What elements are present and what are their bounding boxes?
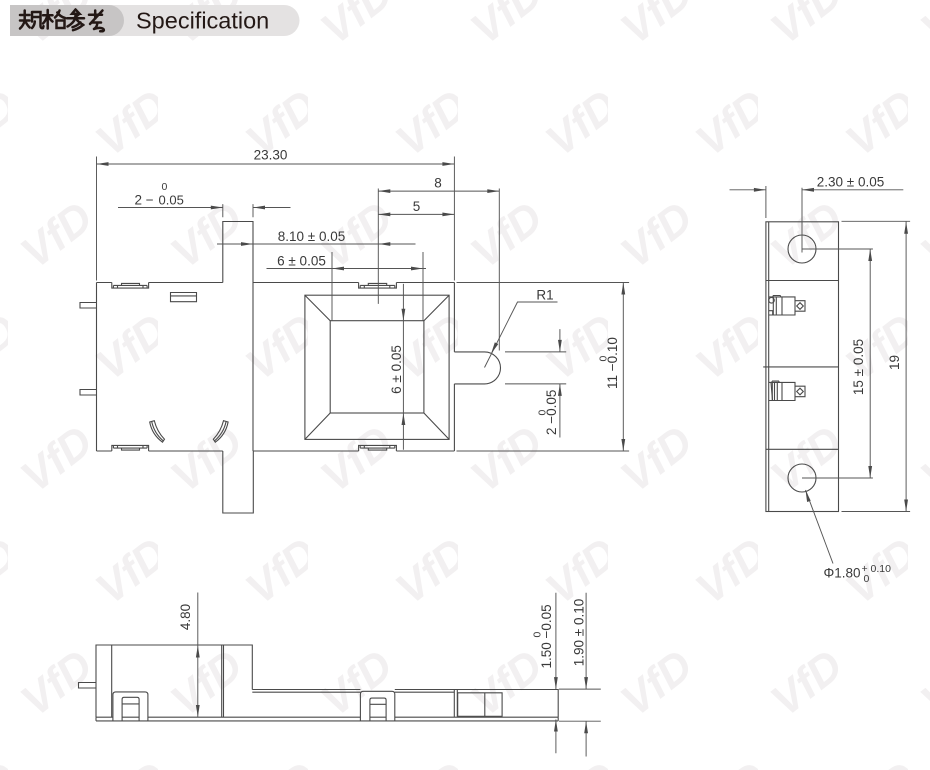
- svg-text:Specification: Specification: [136, 8, 269, 34]
- svg-text:8: 8: [434, 176, 442, 191]
- svg-text:6 ± 0.05: 6 ± 0.05: [277, 254, 326, 269]
- svg-text:1.90 ± 0.10: 1.90 ± 0.10: [572, 599, 587, 666]
- svg-text:0: 0: [864, 573, 870, 585]
- svg-text:0: 0: [162, 181, 168, 193]
- svg-text:8.10 ± 0.05: 8.10 ± 0.05: [278, 229, 345, 244]
- svg-text:2 −: 2 −: [135, 193, 154, 208]
- svg-text:6 ± 0.05: 6 ± 0.05: [389, 345, 404, 394]
- svg-text:0: 0: [598, 356, 610, 362]
- svg-text:0: 0: [532, 632, 544, 638]
- svg-text:0.05: 0.05: [159, 193, 184, 208]
- svg-text:4.80: 4.80: [178, 604, 193, 630]
- svg-text:R1: R1: [536, 288, 553, 303]
- svg-text:19: 19: [887, 355, 902, 370]
- svg-text:15 ± 0.05: 15 ± 0.05: [851, 339, 866, 395]
- svg-text:5: 5: [413, 199, 421, 214]
- svg-text:0: 0: [537, 410, 549, 416]
- svg-text:Φ1.80: Φ1.80: [824, 566, 861, 581]
- svg-text:23.30: 23.30: [254, 148, 288, 163]
- svg-text:2.30 ± 0.05: 2.30 ± 0.05: [817, 175, 884, 190]
- svg-text:11 −0.10: 11 −0.10: [605, 337, 620, 389]
